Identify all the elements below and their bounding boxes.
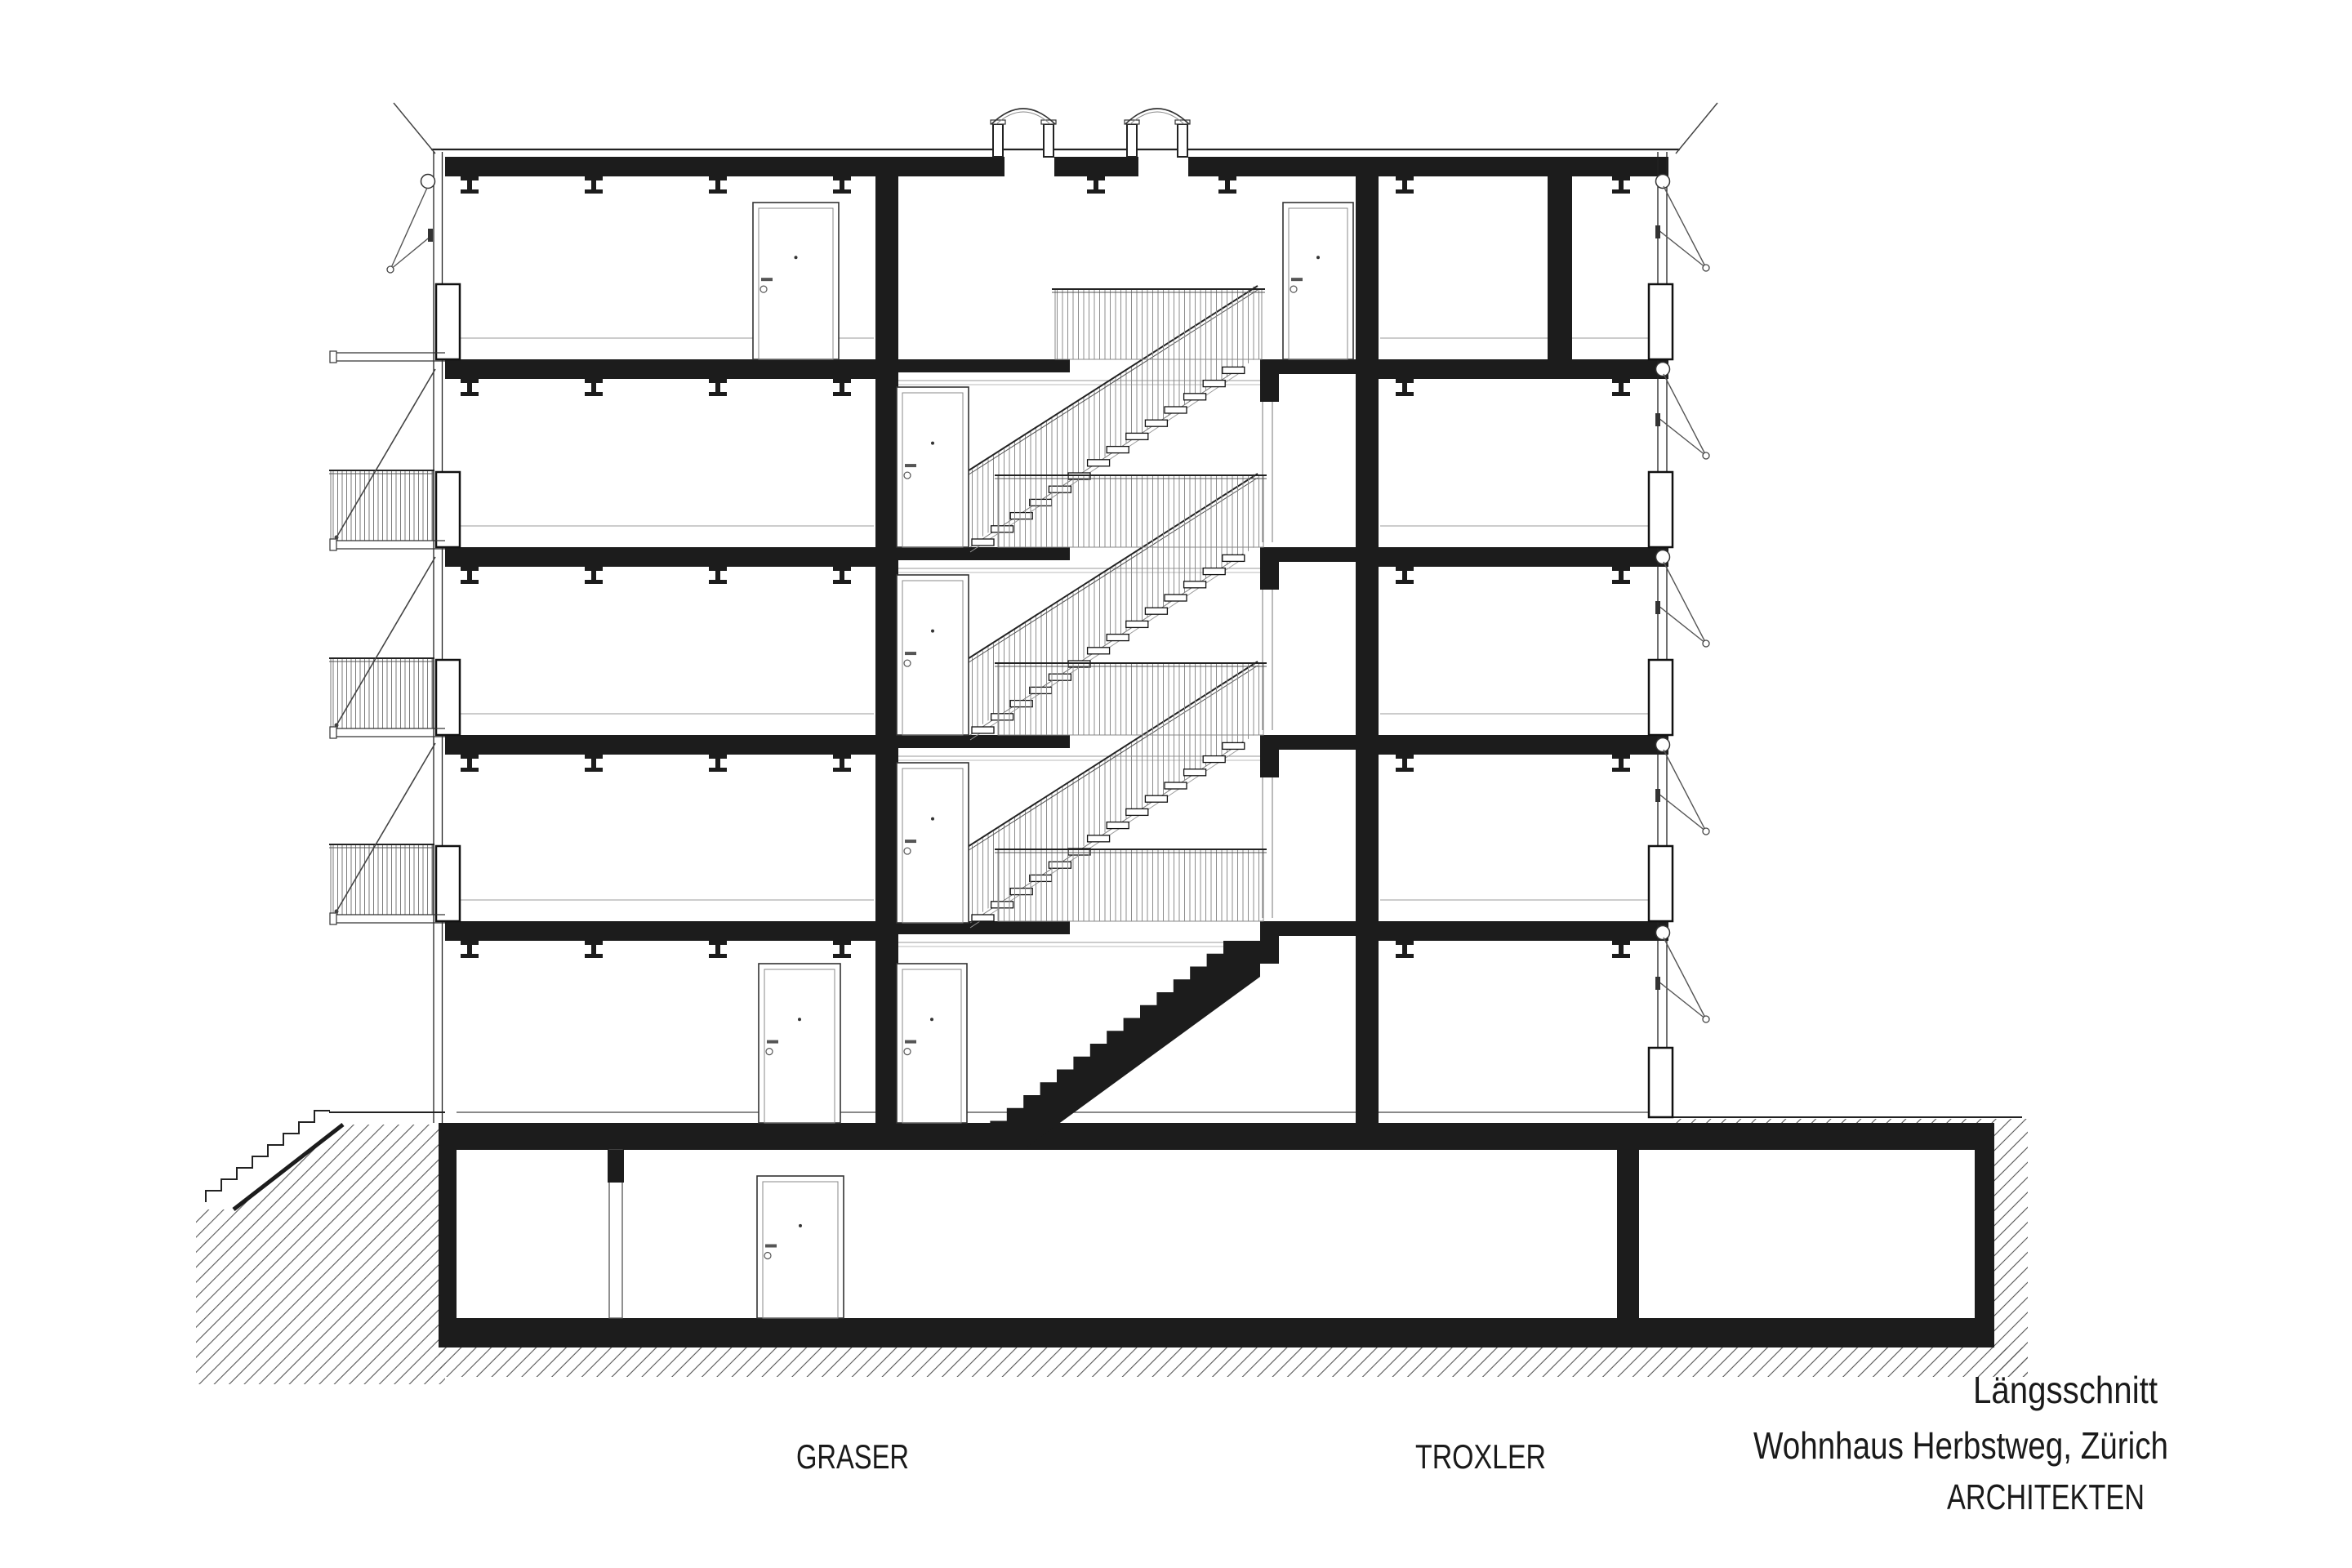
title-laengsschnitt: Längsschnitt xyxy=(1973,1369,2158,1411)
label-graser: GRASER xyxy=(796,1437,909,1476)
section-drawing-canvas: GRASER TROXLER Längsschnitt Wohnhaus Her… xyxy=(0,0,2352,1568)
title-wohnhaus: Wohnhaus Herbstweg, Zürich xyxy=(1753,1424,2168,1467)
title-architekten: ARCHITEKTEN xyxy=(1947,1477,2145,1517)
building-section-drawing: GRASER TROXLER Längsschnitt Wohnhaus Her… xyxy=(0,0,2352,1568)
basement-partition xyxy=(608,1150,624,1318)
label-troxler: TROXLER xyxy=(1415,1437,1546,1476)
